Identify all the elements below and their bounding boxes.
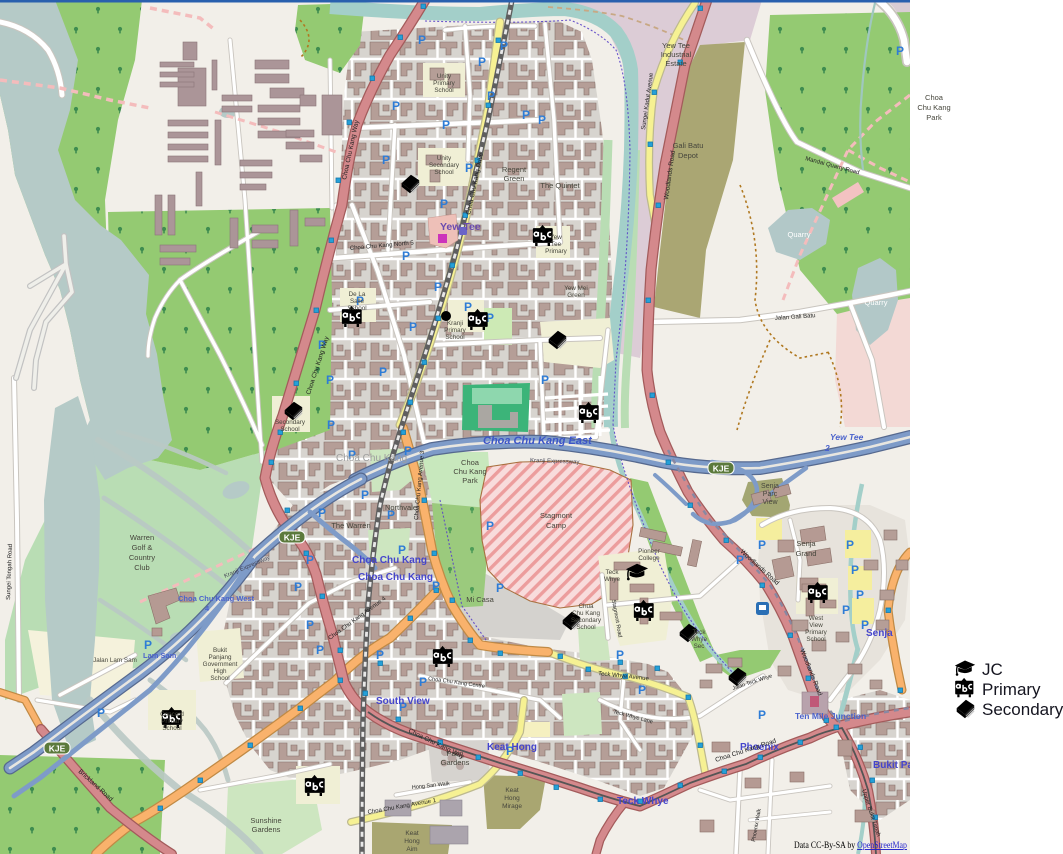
svg-text:P: P [294, 580, 302, 594]
svg-text:Chua: Chua [578, 603, 594, 610]
svg-text:Whye: Whye [691, 636, 708, 643]
svg-text:Country: Country [129, 553, 156, 562]
svg-text:P: P [851, 563, 859, 577]
svg-text:High: High [214, 668, 227, 675]
svg-text:School: School [434, 87, 453, 94]
svg-text:P: P [440, 197, 448, 211]
svg-text:School: School [347, 305, 366, 312]
svg-text:P: P [376, 648, 384, 662]
svg-text:Keat: Keat [405, 830, 419, 837]
svg-text:Choa Chu Kang West: Choa Chu Kang West [178, 594, 255, 603]
svg-text:Industrial: Industrial [661, 50, 692, 59]
svg-text:College: College [638, 555, 660, 562]
svg-text:Senja: Senja [761, 483, 779, 490]
svg-text:Jalan Lam Sam: Jalan Lam Sam [93, 657, 137, 664]
svg-text:P: P [486, 519, 494, 533]
svg-text:Primary: Primary [982, 680, 1041, 699]
svg-text:Regent: Regent [502, 165, 527, 174]
svg-text:Secondary: Secondary [275, 419, 306, 426]
svg-text:Hong: Hong [404, 838, 420, 845]
svg-text:Teck: Teck [606, 569, 620, 576]
svg-text:School: School [806, 636, 825, 643]
svg-text:Concord: Concord [160, 711, 184, 718]
svg-text:De La: De La [349, 291, 366, 298]
svg-text:Bukit: Bukit [213, 647, 227, 654]
svg-text:Keat: Keat [505, 787, 519, 794]
svg-text:View: View [762, 499, 778, 506]
svg-text:Choa: Choa [461, 458, 480, 467]
svg-text:P: P [856, 588, 864, 602]
svg-text:KJE: KJE [713, 464, 730, 474]
svg-text:School: School [434, 169, 453, 176]
svg-text:Senja: Senja [866, 628, 893, 639]
svg-text:Aim: Aim [406, 846, 417, 853]
svg-text:Choa Chu Kang: Choa Chu Kang [352, 555, 427, 566]
svg-text:P: P [402, 249, 410, 263]
svg-text:P: P [418, 33, 426, 47]
svg-text:Sec: Sec [694, 643, 705, 650]
svg-text:Whye: Whye [604, 576, 621, 583]
svg-text:Yew Tee: Yew Tee [830, 432, 864, 442]
svg-text:P: P [144, 638, 152, 652]
svg-text:Green: Green [567, 292, 585, 299]
svg-text:Government: Government [203, 661, 238, 668]
svg-text:Teck: Teck [693, 629, 707, 636]
svg-text:Mirage: Mirage [502, 803, 522, 810]
svg-text:Teck Whye: Teck Whye [617, 796, 669, 807]
svg-text:P: P [306, 553, 314, 567]
svg-text:School: School [445, 334, 464, 341]
svg-text:Park: Park [926, 113, 942, 122]
svg-text:Mi Casa: Mi Casa [466, 595, 494, 604]
svg-text:P: P [382, 153, 390, 167]
svg-text:Chu Kang: Chu Kang [453, 467, 486, 476]
svg-text:Northvale: Northvale [385, 503, 417, 512]
svg-text:P: P [842, 603, 850, 617]
svg-text:Estate: Estate [665, 59, 686, 68]
svg-text:Park: Park [462, 476, 478, 485]
svg-text:P: P [500, 39, 508, 53]
svg-text:School: School [280, 426, 299, 433]
svg-text:P: P [496, 581, 504, 595]
svg-text:KJE: KJE [49, 744, 66, 754]
svg-text:Pioneer: Pioneer [638, 548, 660, 555]
svg-text:Secondary: Secondary [571, 617, 602, 624]
svg-text:Golf &: Golf & [132, 543, 153, 552]
svg-text:Kranji: Kranji [447, 320, 463, 327]
svg-text:Parc: Parc [763, 491, 778, 498]
svg-text:KJE: KJE [284, 533, 301, 543]
svg-text:Grand: Grand [796, 549, 817, 558]
svg-text:Salle: Salle [350, 298, 364, 305]
svg-text:Choa Chu Kang: Choa Chu Kang [358, 572, 433, 583]
svg-text:P: P [896, 44, 904, 58]
svg-text:Lam Sam: Lam Sam [143, 651, 177, 660]
svg-text:Unity: Unity [437, 73, 452, 80]
svg-text:Primary: Primary [433, 80, 456, 87]
svg-text:P: P [409, 320, 417, 334]
svg-text:School: School [210, 675, 229, 682]
svg-text:P: P [541, 373, 549, 387]
svg-text:Keat Hong: Keat Hong [487, 742, 537, 753]
svg-text:Camp: Camp [546, 521, 566, 530]
svg-text:P: P [326, 373, 334, 387]
svg-text:View: View [809, 622, 823, 629]
svg-text:P: P [379, 365, 387, 379]
svg-text:Choa Chu Kang East: Choa Chu Kang East [483, 435, 593, 447]
svg-text:P: P [758, 708, 766, 722]
svg-text:Stagmont: Stagmont [540, 511, 573, 520]
svg-text:Primary: Primary [444, 327, 467, 334]
svg-text:P: P [758, 538, 766, 552]
svg-text:Primary: Primary [805, 629, 828, 636]
svg-text:P: P [434, 280, 442, 294]
svg-text:Yew Tee: Yew Tee [440, 221, 481, 233]
svg-text:Chu Kang: Chu Kang [917, 103, 950, 112]
svg-text:P: P [638, 683, 646, 697]
svg-text:Senja: Senja [796, 539, 816, 548]
svg-text:Panjang: Panjang [208, 654, 232, 661]
svg-text:P: P [465, 161, 473, 175]
svg-text:Chu Kang: Chu Kang [572, 610, 601, 617]
svg-text:P: P [432, 579, 440, 593]
svg-text:School: School [162, 725, 181, 732]
svg-text:Ten Mile Junction: Ten Mile Junction [795, 711, 866, 721]
svg-text:P: P [464, 300, 472, 314]
svg-text:P: P [522, 108, 530, 122]
svg-text:P: P [487, 89, 495, 103]
svg-text:Yew Tee: Yew Tee [662, 41, 690, 50]
svg-text:P: P [318, 506, 326, 520]
svg-text:Gardens: Gardens [441, 758, 470, 767]
svg-text:P: P [306, 618, 314, 632]
svg-text:West: West [809, 615, 823, 622]
svg-text:P: P [616, 648, 624, 662]
svg-text:Quarry: Quarry [865, 298, 888, 307]
svg-text:Club: Club [134, 563, 149, 572]
svg-text:P: P [392, 99, 400, 113]
svg-text:P: P [538, 113, 546, 127]
svg-text:The Warren: The Warren [331, 521, 370, 530]
svg-text:Secondary: Secondary [982, 700, 1063, 719]
svg-text:Warren: Warren [130, 533, 154, 542]
svg-text:Yew Mei: Yew Mei [564, 285, 588, 292]
svg-text:Tee: Tee [551, 241, 562, 248]
svg-text:P: P [419, 675, 427, 689]
svg-text:Choa: Choa [925, 93, 944, 102]
svg-text:The Quintet: The Quintet [540, 181, 580, 190]
svg-text:P: P [846, 538, 854, 552]
svg-text:JC: JC [982, 660, 1003, 679]
svg-text:School: School [576, 624, 595, 631]
svg-text:P: P [97, 706, 105, 720]
svg-text:Quarry: Quarry [788, 230, 811, 239]
svg-text:2: 2 [824, 443, 830, 453]
svg-text:Green: Green [504, 174, 525, 183]
svg-text:Unity: Unity [437, 155, 452, 162]
svg-text:Gali Batu: Gali Batu [673, 141, 704, 150]
svg-text:Sunshine: Sunshine [250, 816, 281, 825]
svg-text:P: P [478, 55, 486, 69]
svg-text:P: P [327, 418, 335, 432]
svg-text:P: P [316, 643, 324, 657]
svg-text:Primary: Primary [545, 248, 568, 255]
svg-text:Primary: Primary [161, 718, 184, 725]
svg-text:Secondary: Secondary [429, 162, 460, 169]
svg-text:Yew: Yew [550, 234, 562, 241]
svg-text:P: P [442, 118, 450, 132]
svg-text:Data CC-By-SA by OpenStreetMap: Data CC-By-SA by OpenStreetMap [794, 841, 907, 851]
svg-text:Gardens: Gardens [252, 825, 281, 834]
svg-text:South View: South View [376, 696, 430, 707]
svg-text:P: P [361, 488, 369, 502]
svg-text:Hong: Hong [504, 795, 520, 802]
svg-text:Depot: Depot [678, 151, 699, 160]
svg-text:Choa Chu Kang: Choa Chu Kang [336, 453, 407, 464]
